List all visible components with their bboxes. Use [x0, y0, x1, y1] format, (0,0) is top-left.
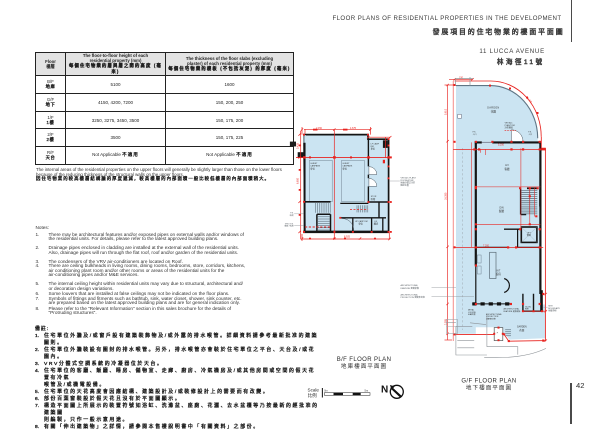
svg-text:BOUNDARY: BOUNDARY: [548, 307, 560, 310]
svg-text:PLANT RM: PLANT RM: [505, 124, 515, 127]
svg-text:5,250: 5,250: [498, 143, 505, 146]
svg-text:花園: 花園: [491, 109, 497, 113]
svg-text:B/F FLOOR PLAN: B/F FLOOR PLAN: [337, 357, 392, 363]
svg-text:N: N: [381, 384, 388, 395]
svg-text:CARPARK: CARPARK: [342, 165, 353, 168]
svg-text:LIV: LIV: [505, 164, 509, 167]
svg-text:ARCHITECTURAL: ARCHITECTURAL: [401, 284, 419, 287]
svg-text:KIT: KIT: [497, 269, 501, 272]
svg-text:花園: 花園: [519, 328, 525, 332]
svg-text:5,610: 5,610: [445, 108, 448, 115]
svg-text:UP CARP RM: UP CARP RM: [355, 220, 368, 223]
svg-text:0m: 0m: [324, 388, 328, 392]
svg-text:廚房: 廚房: [496, 272, 502, 276]
svg-text:地下樓面平面圖: 地下樓面平面圖: [466, 384, 512, 392]
svg-text:Scale: Scale: [308, 388, 320, 393]
svg-text:ROOM AT B/F: ROOM AT B/F: [401, 179, 415, 182]
svg-text:VRV A/C PLANT: VRV A/C PLANT: [401, 176, 417, 179]
svg-text:16,355: 16,355: [445, 192, 448, 200]
svg-text:G/F FLOOR PLAN: G/F FLOOR PLAN: [461, 379, 516, 385]
svg-text:7,200: 7,200: [483, 245, 490, 248]
svg-text:入口: 入口: [473, 133, 477, 136]
svg-text:4,675: 4,675: [350, 127, 357, 130]
svg-text:9,025: 9,025: [526, 97, 533, 104]
svg-text:比例: 比例: [308, 392, 318, 399]
svg-text:CARPARK: CARPARK: [310, 165, 321, 168]
svg-text:GARDEN: GARDEN: [517, 325, 527, 328]
svg-text:飯廳: 飯廳: [499, 209, 505, 213]
svg-text:客廳: 客廳: [504, 167, 510, 171]
svg-text:地庫樓面平面圖: 地庫樓面平面圖: [341, 362, 387, 370]
svg-text:150: 150: [459, 76, 464, 79]
svg-text:GARDEN: GARDEN: [487, 107, 500, 110]
svg-text:DIN: DIN: [499, 206, 503, 209]
svg-text:5m: 5m: [365, 388, 369, 392]
svg-text:6,650: 6,650: [297, 177, 300, 184]
svg-text:入口: 入口: [528, 133, 532, 136]
svg-text:RM: RM: [371, 146, 374, 148]
svg-text:ARCHITECTURAL: ARCHITECTURAL: [401, 293, 419, 296]
